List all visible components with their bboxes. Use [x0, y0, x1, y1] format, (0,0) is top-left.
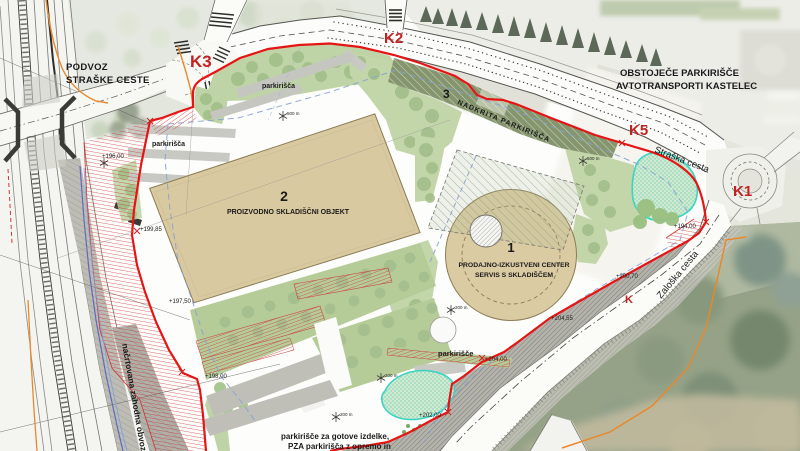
svg-text:+197,50: +197,50 — [169, 299, 192, 305]
svg-text:2: 2 — [280, 188, 288, 204]
svg-text:K: K — [625, 294, 633, 306]
svg-text:SERVIS S SKLADIŠČEM: SERVIS S SKLADIŠČEM — [475, 270, 553, 279]
svg-text:+202,00: +202,00 — [419, 413, 442, 419]
svg-text:PZA parkirišča z opremo in: PZA parkirišča z opremo in — [288, 442, 391, 451]
svg-text:PODVOZ: PODVOZ — [66, 62, 108, 73]
svg-text:500 m: 500 m — [287, 111, 300, 116]
svg-text:OBSTOJEČE PARKIRIŠČE: OBSTOJEČE PARKIRIŠČE — [620, 67, 739, 79]
svg-text:PROIZVODNO SKLADIŠČNI OBJEKT: PROIZVODNO SKLADIŠČNI OBJEKT — [227, 207, 350, 216]
svg-text:+200,70: +200,70 — [616, 274, 639, 280]
svg-text:500 m: 500 m — [587, 156, 600, 161]
svg-text:200 m: 200 m — [455, 305, 468, 310]
svg-text:+204,55: +204,55 — [551, 316, 574, 322]
svg-text:+198,00: +198,00 — [205, 374, 228, 380]
svg-text:1: 1 — [507, 240, 514, 255]
svg-text:+196,00: +196,00 — [102, 154, 125, 160]
svg-text:parkirišča: parkirišča — [262, 83, 295, 90]
svg-text:parkirišča: parkirišča — [152, 141, 185, 148]
svg-text:200 m: 200 m — [385, 373, 398, 378]
svg-text:K1: K1 — [733, 183, 752, 200]
svg-text:K5: K5 — [629, 122, 648, 139]
svg-text:parkirišče za gotove izdelke,: parkirišče za gotove izdelke, — [281, 432, 389, 441]
svg-text:AVTOTRANSPORTI KASTELEC: AVTOTRANSPORTI KASTELEC — [616, 81, 757, 92]
svg-text:PRODAJNO-IZKUSTVENI CENTER: PRODAJNO-IZKUSTVENI CENTER — [458, 262, 569, 269]
svg-text:200 m: 200 m — [340, 412, 353, 417]
svg-text:+194,00: +194,00 — [674, 224, 697, 230]
svg-text:K2: K2 — [384, 30, 403, 47]
svg-text:3: 3 — [443, 87, 450, 101]
svg-text:+204,00: +204,00 — [485, 357, 508, 363]
svg-text:K3: K3 — [190, 52, 212, 71]
svg-text:parkirišče: parkirišče — [438, 349, 473, 358]
svg-text:+199,85: +199,85 — [140, 227, 163, 233]
svg-text:STRAŠKE CESTE: STRAŠKE CESTE — [66, 74, 150, 86]
